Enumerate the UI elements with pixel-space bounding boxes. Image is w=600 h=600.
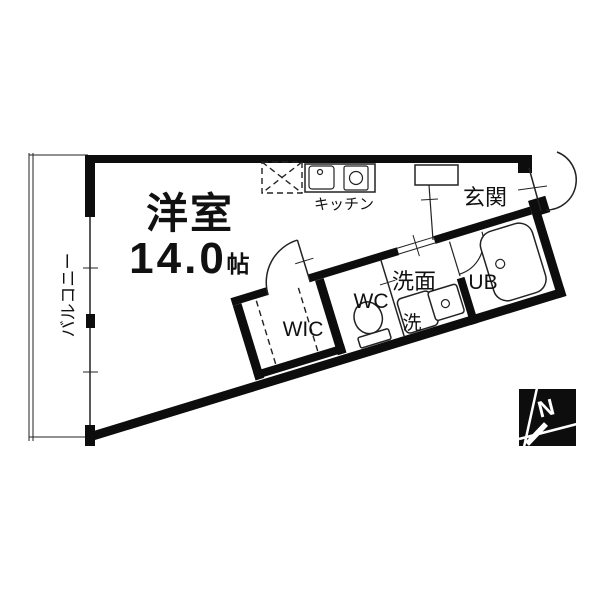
- shoe-cabinet: [415, 165, 458, 185]
- balcony: バルコニー: [29, 153, 90, 441]
- washroom-label: 洗面: [392, 269, 436, 294]
- left-wall-lower: [85, 425, 95, 446]
- entrance-door-arc: [546, 152, 576, 210]
- floorplan-drawing: バルコニー: [0, 0, 600, 600]
- main-room-size-unit: 帖: [227, 251, 250, 277]
- wic-left-wall: [233, 303, 264, 380]
- room-labels: 洋室 14.0 帖 キッチン 玄関 WIC WC 洗面 洗 UB: [129, 185, 507, 341]
- entrance-step-tick: [421, 199, 438, 200]
- ub-door-leaf: [450, 242, 461, 276]
- stove-burner: [350, 172, 363, 185]
- top-wall: [87, 155, 530, 163]
- wic-door-arc: [255, 240, 310, 295]
- wic-right-wall: [315, 278, 346, 355]
- sink-faucet: [318, 170, 323, 175]
- toilet-label: WC: [354, 290, 389, 313]
- kitchen-area: [262, 162, 375, 193]
- entrance-door-tick: [518, 186, 547, 190]
- left-wall-upper: [85, 155, 95, 217]
- entrance-step-line: [429, 185, 433, 240]
- main-room-size: 14.0: [129, 234, 227, 283]
- compass: N: [519, 388, 577, 447]
- washroom-opening-tick: [413, 235, 419, 256]
- entrance-label: 玄関: [463, 185, 507, 210]
- partition-band-left: [230, 287, 268, 305]
- laundry-label: 洗: [402, 312, 421, 334]
- rotated-wing: [56, 170, 566, 440]
- closet-label: WIC: [283, 318, 324, 341]
- main-window: [83, 217, 98, 425]
- floorplan-page: バルコニー: [0, 0, 600, 600]
- balcony-label: バルコニー: [59, 253, 78, 338]
- kitchen-label: キッチン: [314, 196, 374, 213]
- window-center-stile: [86, 314, 95, 328]
- bath-label: UB: [468, 271, 497, 294]
- main-room-label: 洋室: [146, 190, 234, 237]
- wic-hanger-dash-left: [256, 301, 275, 364]
